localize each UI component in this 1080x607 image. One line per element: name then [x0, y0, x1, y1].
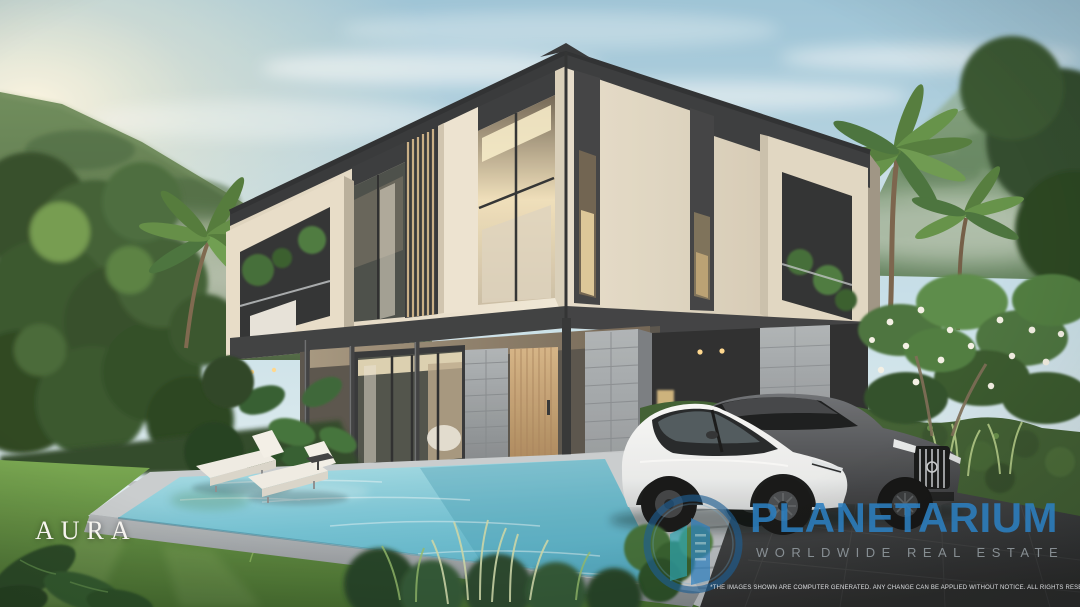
project-title: AURA — [35, 516, 137, 546]
render-canvas: AURA PLANETARIUM WORLDWIDE REAL ESTATE *… — [0, 0, 1080, 607]
disclaimer-text: *THE IMAGES SHOWN ARE COMPUTER GENERATED… — [710, 584, 1080, 591]
scene-illustration — [0, 0, 1080, 607]
vignette — [0, 0, 1080, 607]
